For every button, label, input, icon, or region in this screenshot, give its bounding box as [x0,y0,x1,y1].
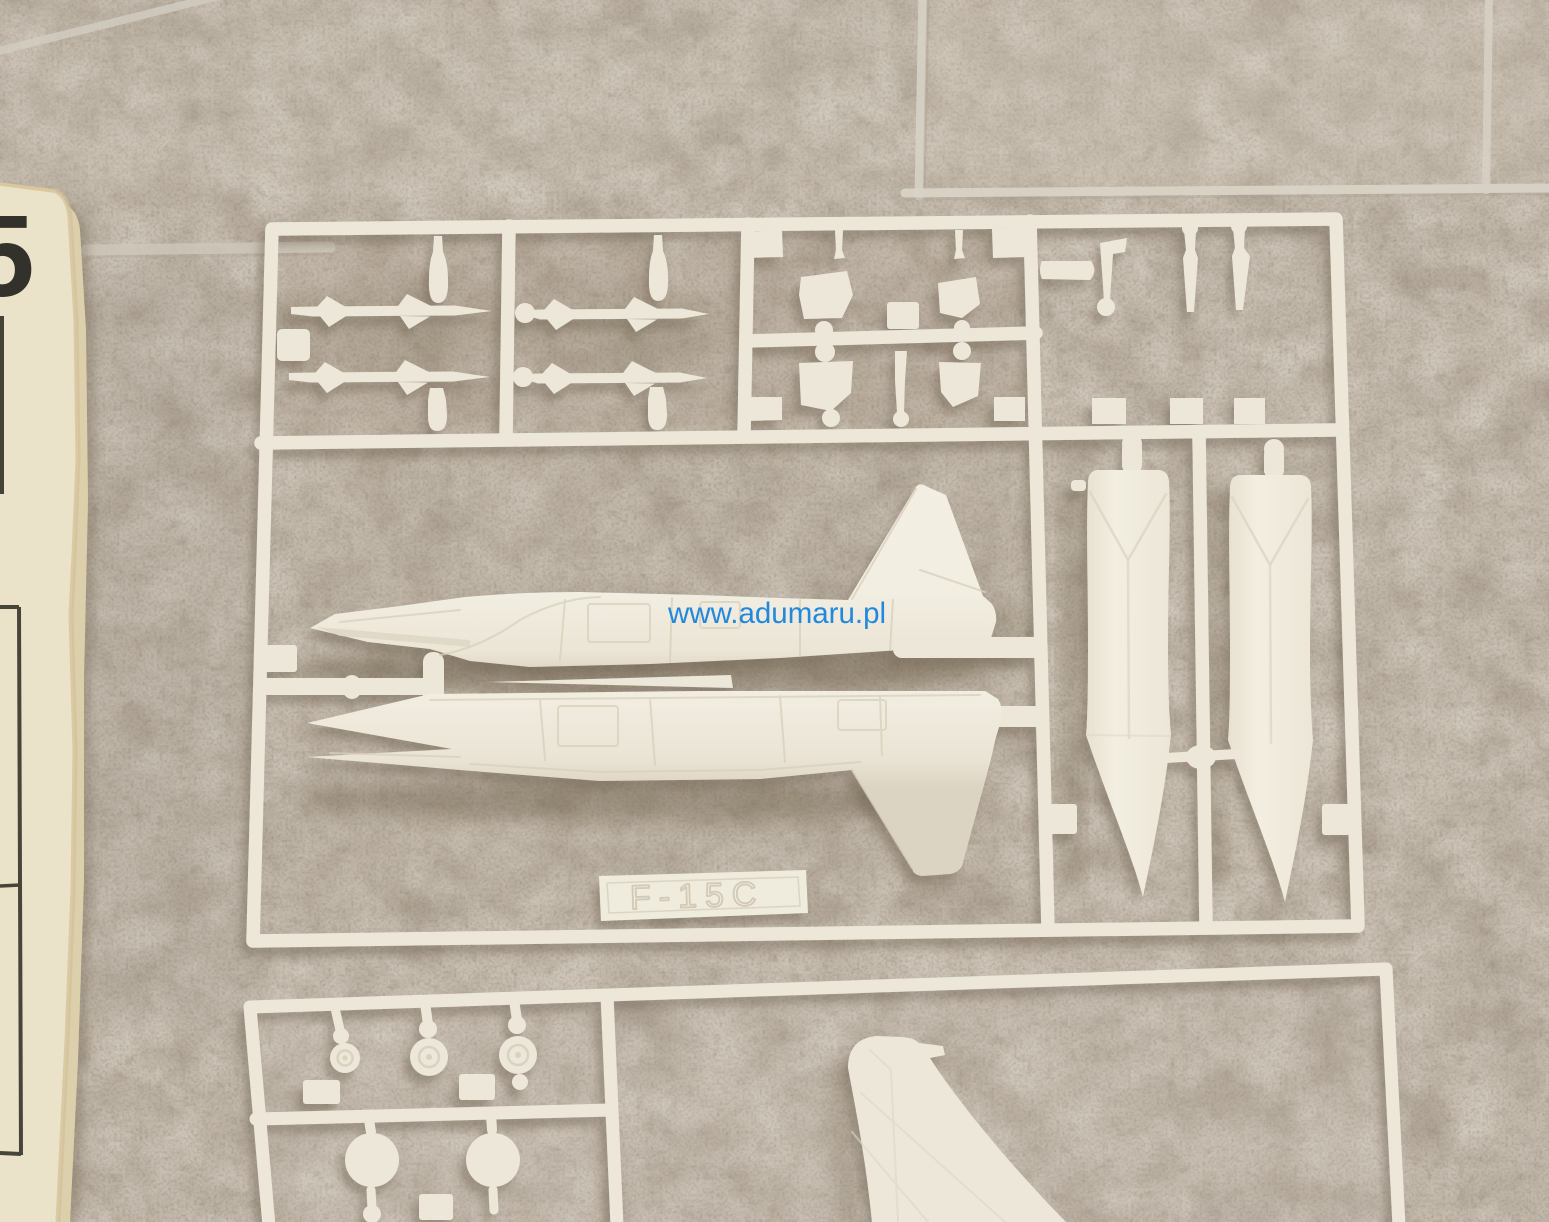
svg-text:F-15C: F-15C [629,875,765,917]
svg-text:5: 5 [0,191,35,321]
svg-text:www.adumaru.pl: www.adumaru.pl [667,597,886,630]
